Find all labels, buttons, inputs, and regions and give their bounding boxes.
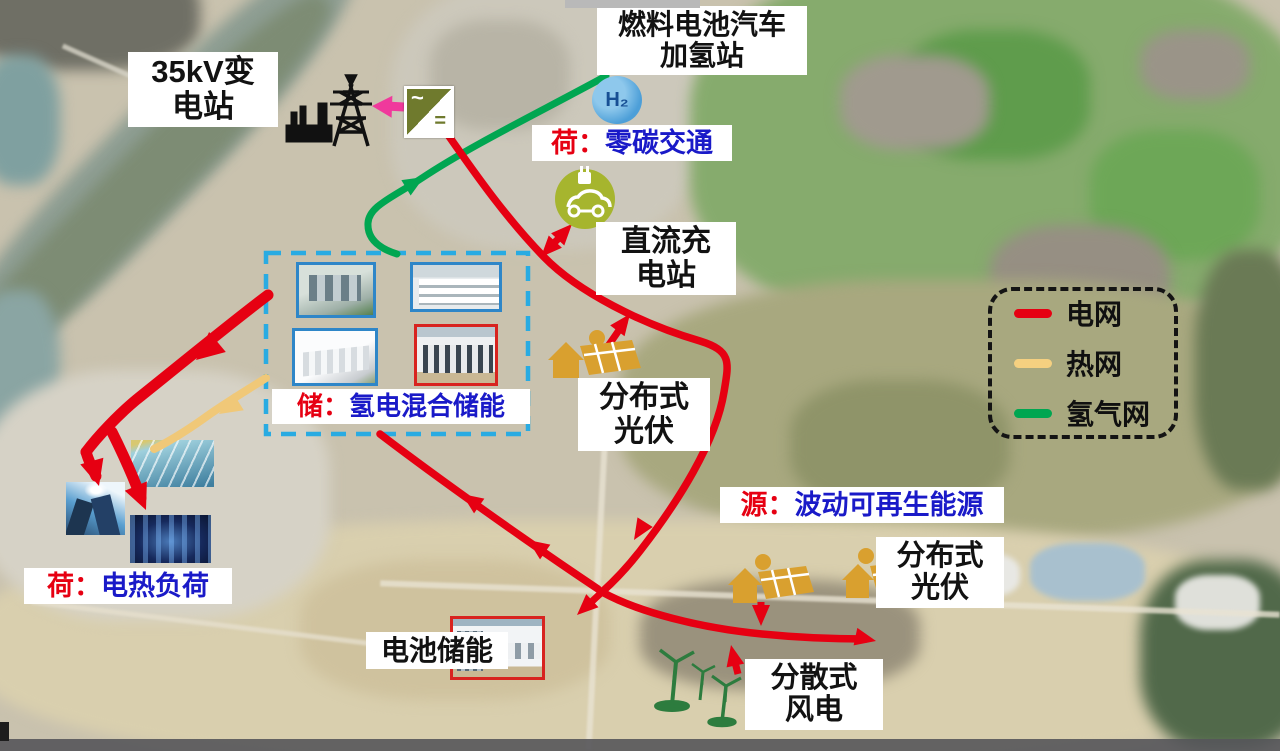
grid-arrowhead xyxy=(125,481,157,514)
legend-row-hydrogen: 氢气网 xyxy=(1014,393,1174,433)
label-pv1-line1: 分布式 xyxy=(584,381,704,415)
pink-arrowhead xyxy=(372,95,393,118)
label-wind-line2: 风电 xyxy=(751,694,877,726)
label-wind: 分散式 风电 xyxy=(745,659,883,730)
grid-line-swatch xyxy=(1014,309,1052,318)
dc-symbol: = xyxy=(434,110,446,133)
inverter-icon: ~ = xyxy=(404,86,454,138)
label-substation-line2: 电站 xyxy=(134,90,272,125)
label-storage: 储：氢电混合储能 xyxy=(272,389,530,424)
label-fuel-station: 燃料电池汽车 加氢站 xyxy=(597,6,807,75)
label-battery-storage: 电池储能 xyxy=(366,632,508,669)
hydrogen-station-icon: H₂ xyxy=(592,76,642,124)
label-wind-line1: 分散式 xyxy=(751,662,877,694)
heat-load-text: 电热负荷 xyxy=(101,571,209,601)
label-substation: 35kV变 电站 xyxy=(128,52,278,127)
grid-line-storage-curve xyxy=(380,434,598,589)
edge-artifact xyxy=(0,722,9,741)
label-pv1: 分布式 光伏 xyxy=(578,378,710,451)
label-dc-line2: 电站 xyxy=(602,259,730,293)
heat-line xyxy=(154,378,266,449)
label-source: 源：波动可再生能源 xyxy=(720,487,1004,523)
rooftop-pv-icon-2 xyxy=(728,554,814,603)
storage-text: 氢电混合储能 xyxy=(349,391,505,421)
load-prefix: 荷： xyxy=(551,128,605,158)
integrated-energy-system-map: ~ = H₂ 35kV变 电站 燃料电池汽车 加氢站 荷：零碳交通 直流充 电站… xyxy=(0,0,1280,751)
label-heat-load: 荷：电热负荷 xyxy=(24,568,232,604)
battery-text: 电池储能 xyxy=(381,635,493,666)
legend: 电网 热网 氢气网 xyxy=(988,287,1178,439)
label-dc-charging: 直流充 电站 xyxy=(596,222,736,295)
legend-row-grid: 电网 xyxy=(1014,293,1174,333)
load-text: 零碳交通 xyxy=(605,128,713,158)
bottom-edge-strip xyxy=(0,739,1280,751)
label-pv2-line1: 分布式 xyxy=(882,540,998,572)
grid-arrowhead xyxy=(752,605,770,626)
label-pv1-line2: 光伏 xyxy=(584,415,704,449)
grid-arrowhead xyxy=(722,643,744,667)
label-pv2-line2: 光伏 xyxy=(882,572,998,604)
label-dc-line1: 直流充 xyxy=(602,225,730,259)
heat-load-prefix: 荷： xyxy=(47,571,101,601)
legend-grid-label: 电网 xyxy=(1066,293,1122,333)
label-fuel-line2: 加氢站 xyxy=(603,40,801,71)
label-zero-carbon-transport: 荷：零碳交通 xyxy=(532,125,732,161)
legend-hydrogen-label: 氢气网 xyxy=(1066,393,1150,433)
grid-arrowhead xyxy=(854,628,878,650)
legend-heat-label: 热网 xyxy=(1066,343,1122,383)
ac-symbol: ~ xyxy=(411,85,424,111)
hydrogen-line-swatch xyxy=(1014,409,1052,418)
h2-text: H₂ xyxy=(605,89,628,112)
rooftop-pv-icon-1 xyxy=(548,330,641,378)
heat-line-swatch xyxy=(1014,359,1052,368)
window-edge-strip xyxy=(565,0,700,8)
storage-prefix: 储： xyxy=(297,391,349,421)
legend-row-heat: 热网 xyxy=(1014,343,1174,383)
label-pv2: 分布式 光伏 xyxy=(876,537,1004,608)
source-text: 波动可再生能源 xyxy=(795,490,984,520)
ev-charging-icon xyxy=(555,166,615,229)
label-fuel-line1: 燃料电池汽车 xyxy=(603,9,801,40)
label-substation-line1: 35kV变 xyxy=(134,55,272,90)
source-prefix: 源： xyxy=(741,490,795,520)
substation-tower-icon xyxy=(286,76,372,146)
